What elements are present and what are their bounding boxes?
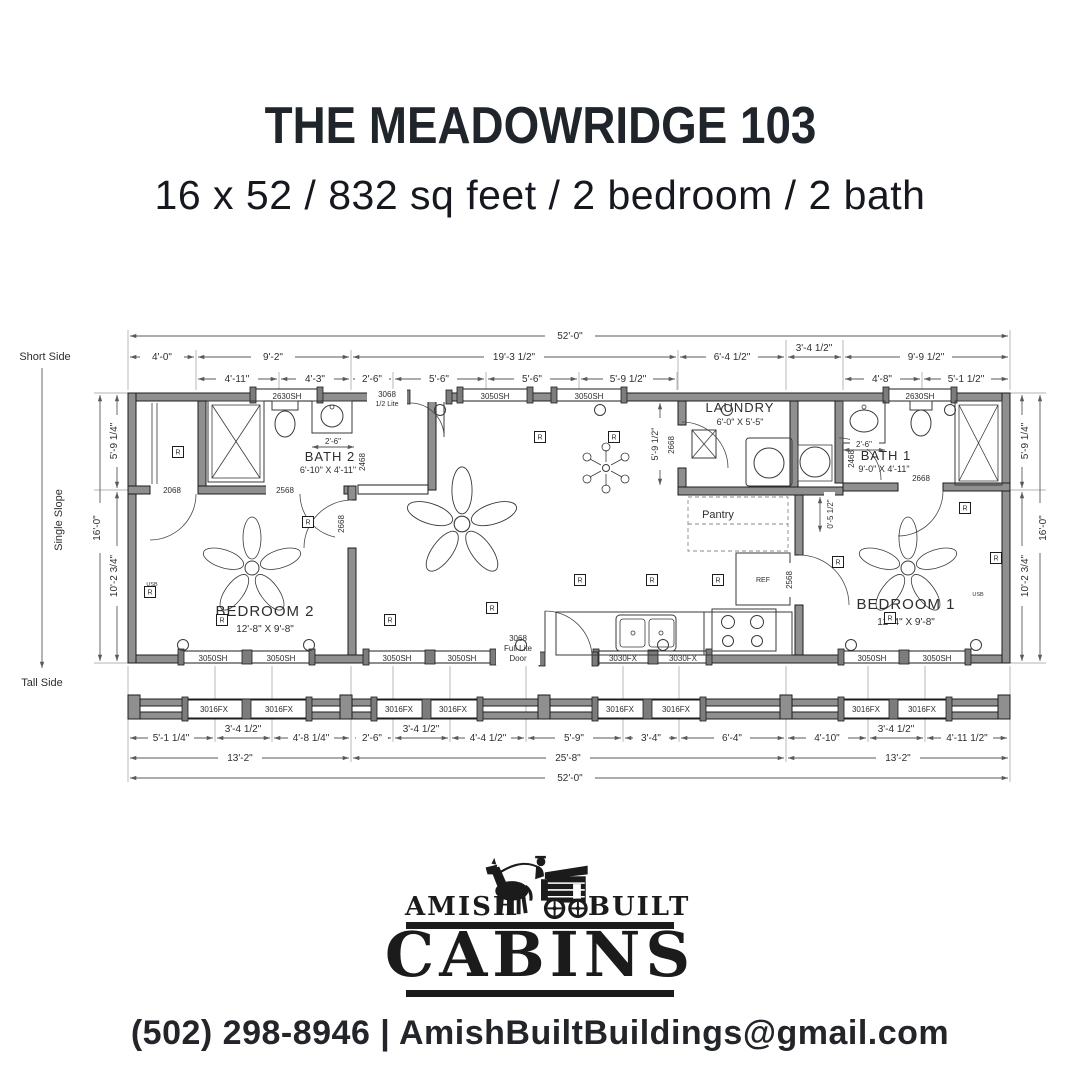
dim-label: 16'-0" [92,515,103,541]
room-size: 9'-0" X 4'-11" [858,464,909,474]
dim-label: 2'-6" [362,374,382,385]
dim-label: 5'-9 1/4" [1020,422,1031,459]
dim-label: 10'-2 3/4" [1020,554,1031,597]
window-label: 3050SH [923,654,952,663]
dim-label: 25'-8" [555,753,581,764]
page: THE MEADOWRIDGE 103 16 x 52 / 832 sq fee… [0,0,1080,1080]
porch-wall: 3016FX 3016FX 3016FX 3016FX 3016FX 3016F… [128,695,1010,721]
dim-label: 10'-2 3/4" [109,554,120,597]
dim-label: 4'-0" [152,352,172,363]
dim-label: 6'-4 1/2" [714,352,751,363]
dim-label: 5'-9 1/2" [610,374,647,385]
usb-label: USB [972,592,984,598]
living-area [405,443,629,576]
front-door: 3068 1/2 Lite [367,389,452,437]
page-subtitle: 16 x 52 / 832 sq feet / 2 bedroom / 2 ba… [0,172,1080,219]
window-label: 2630SH [906,392,935,401]
dim-label: 5'-9 1/2" [650,428,660,461]
window-label: 3016FX [439,705,468,714]
window-label: 3016FX [662,705,691,714]
dim-label: 4'-8" [872,374,892,385]
window-label: 3016FX [606,705,635,714]
right-dimensions: 5'-9 1/4" 10'-2 3/4" 16'-0" [1018,395,1049,661]
dim-label: 3'-4 1/2" [796,343,833,354]
room-name: BATH 2 [305,449,356,464]
window-label: 3016FX [908,705,937,714]
floor-plan: R Short Side Single Slope Tall Side [0,300,1080,800]
back-door: 3068 Full Lite Door [496,611,598,666]
dim-label: 3'-4 1/2" [403,724,440,735]
window-label: 3016FX [385,705,414,714]
single-slope-label: Single Slope [53,489,65,551]
dim-label: 9'-9 1/2" [908,352,945,363]
dim-label: 13'-2" [885,753,911,764]
door-label: 2668 [667,436,676,454]
dim-label: 3'-4" [641,733,661,744]
room-name: LAUNDRY [706,400,775,415]
left-dimensions: 16'-0" 5'-9 1/4" 10'-2 3/4" [90,395,120,661]
room-size: 6'-0" X 5'-5" [717,417,764,427]
dim-label: 5'-6" [429,374,449,385]
dim-label: 4'-11" [225,374,250,385]
dim-label: 5'-1 1/2" [948,374,985,385]
contact-line: (502) 298-8946 | AmishBuiltBuildings@gma… [0,1014,1080,1053]
dim-label: 5'-9 1/4" [109,422,120,459]
window-label: 3050SH [199,654,228,663]
window-label: 3050SH [481,392,510,401]
dim-label: 19'-3 1/2" [493,352,536,363]
bath-1: 2468 2'-6" BATH 1 9'-0" X 4'-11" 2668 [839,401,1002,536]
window-label: 3050SH [448,654,477,663]
window-label: 3050SH [267,654,296,663]
bedroom-2: 2668 BEDROOM 2 12'-8" X 9'-8" USB [146,500,352,635]
dim-label: 16'-0" [1038,515,1049,541]
dim-label: 3'-4 1/2" [878,724,915,735]
door-label: 2568 [276,486,294,495]
roof-annotation: Short Side Single Slope Tall Side [19,351,70,689]
tall-side-label: Tall Side [21,677,63,689]
door-label: 2468 [847,450,856,468]
short-side-label: Short Side [19,351,70,363]
window-label: 3016FX [265,705,294,714]
logo-divider-bottom [406,990,674,997]
window-label: 3050SH [383,654,412,663]
window-label: 2630SH [273,392,302,401]
dim-label: 5'-6" [522,374,542,385]
dim-label: 5'-9" [564,733,584,744]
dim-label: 52'-0" [557,331,583,342]
logo-word-cabins: CABINS [0,918,1080,991]
dim-label: 4'-8 1/4" [293,733,330,744]
door-label: 3068 [509,634,527,643]
dim-label: 9'-2" [263,352,283,363]
dim-label: 3'-4 1/2" [225,724,262,735]
dim-label: 4'-3" [305,374,325,385]
dim-label: 4'-10" [814,733,840,744]
window-label: 3050SH [575,392,604,401]
dim-label: 0'-5 1/2" [826,499,835,528]
room-name: BEDROOM 2 [215,603,314,620]
window-label: 3050SH [858,654,887,663]
room-size: 6'-10" X 4'-11" [300,465,356,475]
room-name: BEDROOM 1 [856,596,955,613]
page-title: THE MEADOWRIDGE 103 [0,96,1080,156]
bottom-dimensions: 5'-1 1/4" 3'-4 1/2" 4'-8 1/4" 2'-6" 3'-4… [130,722,1008,784]
dim-label: 5'-1 1/4" [153,733,190,744]
room-size: 12'-8" X 9'-8" [236,624,294,635]
dim-label: 2'-6" [325,437,341,446]
door-label: 3068 [378,390,396,399]
room-name: BATH 1 [861,448,912,463]
door-label: 2568 [785,571,794,589]
door-label: Full Lite [504,644,533,653]
window-label: 3016FX [200,705,229,714]
laundry: 2668 LAUNDRY 6'-0" X 5'-5" 5'-9 1/2" [649,400,832,486]
door-label: 2668 [912,474,930,483]
page-title-text: THE MEADOWRIDGE 103 [264,96,816,156]
horse-and-wagon-icon [482,852,600,922]
door-label: 1/2 Lite [376,401,399,408]
dim-label: 6'-4" [722,733,742,744]
ref-label: REF [756,577,770,584]
closet-2: 2068 [150,403,196,540]
company-logo: AMISH BUILT [0,852,1080,1002]
dim-label: 52'-0" [557,773,583,784]
door-label: 2068 [163,486,181,495]
door-label: Door [509,654,527,663]
dim-label: 4'-11 1/2" [946,733,988,744]
door-label: 2468 [358,453,367,471]
dim-label: 2'-6" [362,733,382,744]
top-dimensions: 52'-0" 4'-0" 9'-2" 19'-3 1/2" 6'-4 1/2" … [130,329,1008,385]
room-name: Pantry [702,509,734,521]
dim-label: 4'-4 1/2" [470,733,507,744]
bath-2: 2'-6" BATH 2 6'-10" X 4'-11" 2468 2568 [208,401,428,538]
bedroom-1: 2568 BEDROOM 1 12'-4" X 9'-8" USB [783,517,984,628]
door-label: 2668 [337,515,346,533]
dim-label: 13'-2" [227,753,253,764]
window-label: 3016FX [852,705,881,714]
